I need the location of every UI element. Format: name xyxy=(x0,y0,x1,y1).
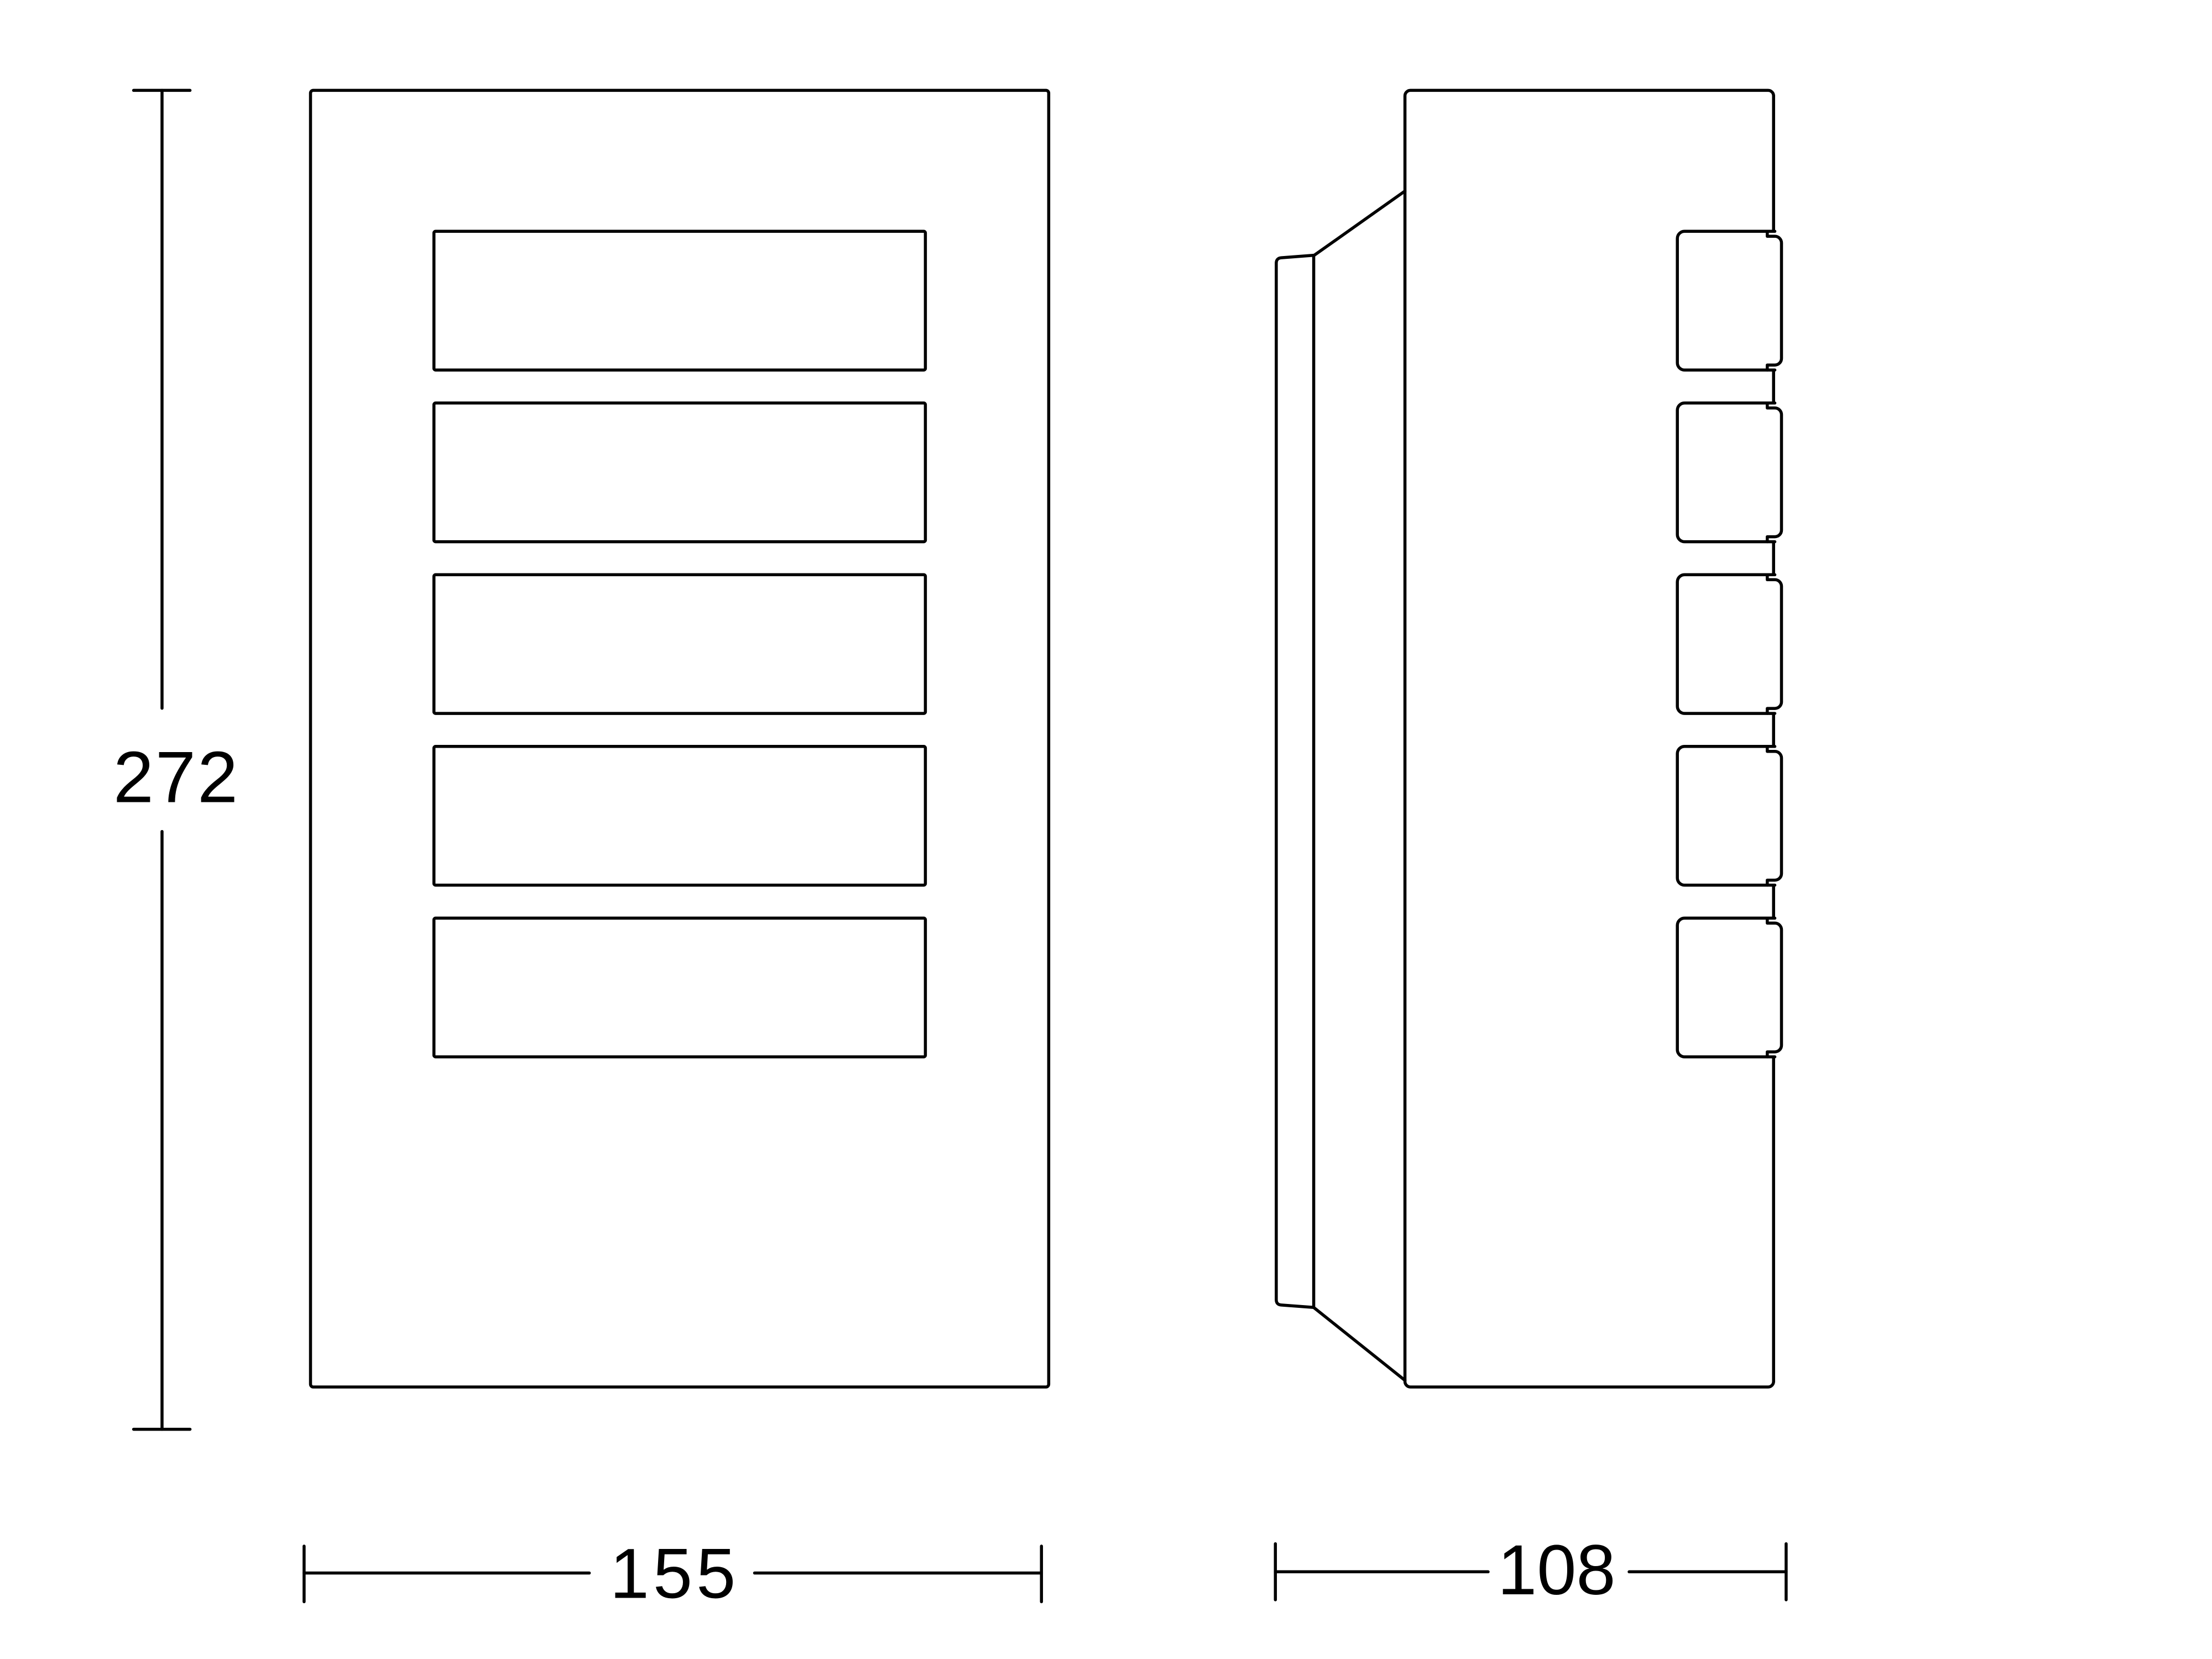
svg-text:272: 272 xyxy=(113,737,238,818)
svg-text:108: 108 xyxy=(1498,1531,1616,1610)
svg-text:155: 155 xyxy=(610,1535,736,1614)
